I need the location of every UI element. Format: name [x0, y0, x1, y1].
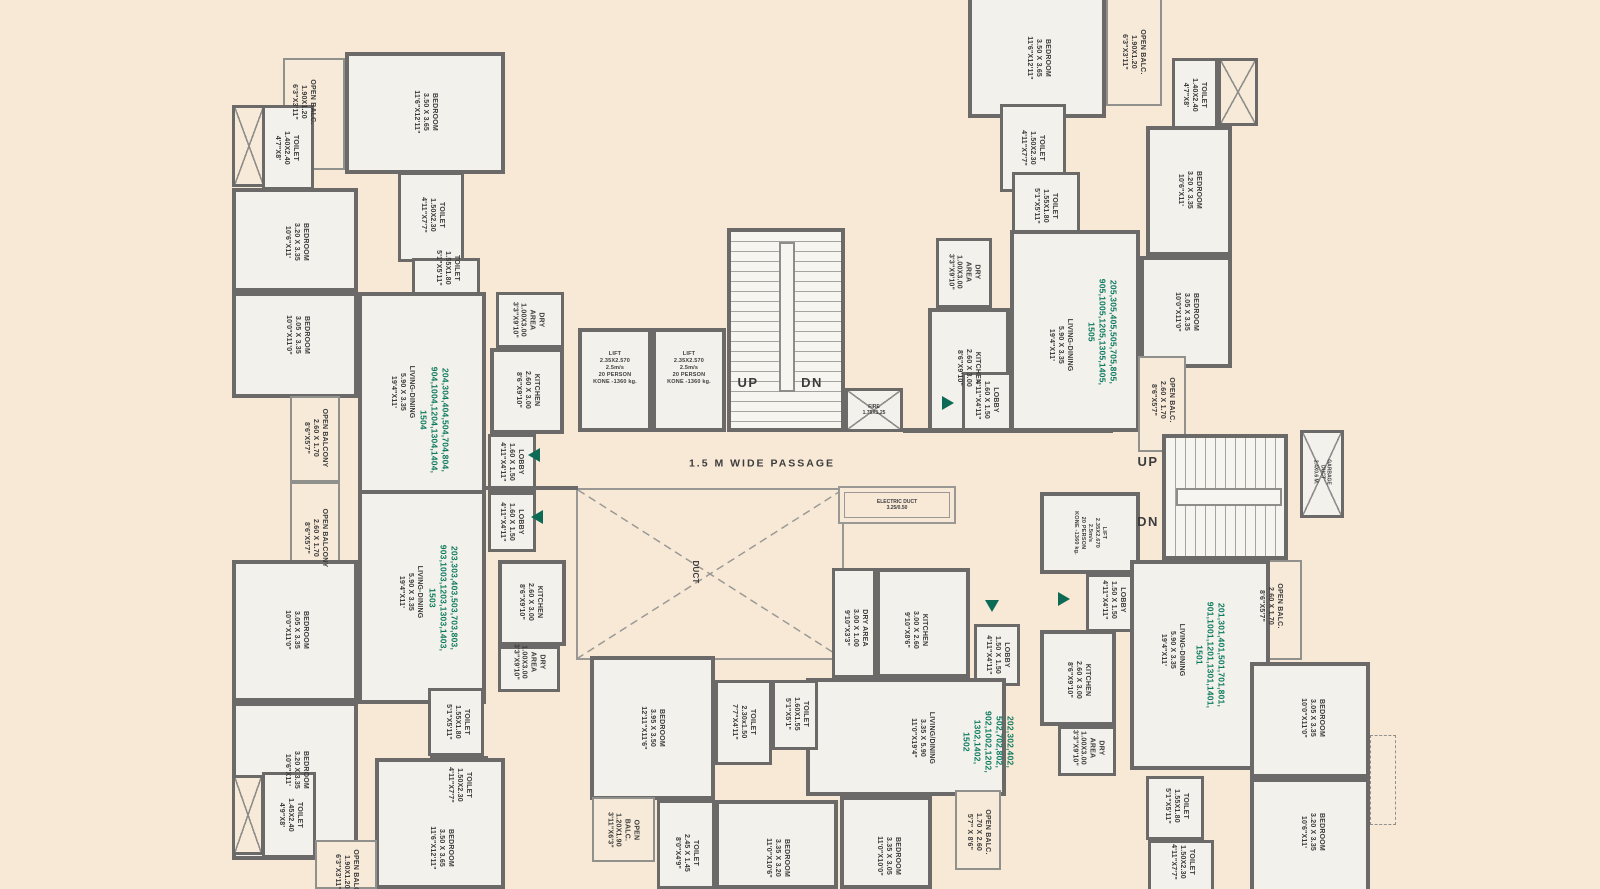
unit-numbers-1503: 203,303,403,503,703,803, 903,1003,1203,1… [426, 545, 459, 651]
toilet-label: TOILET 1.40X2.40 4'7"X8' [1181, 78, 1207, 112]
stair-rail [779, 242, 795, 392]
stair-up-label: UP [1137, 454, 1158, 470]
toilet-label: TOILET 1.50X2.30 4'11"X7'7" [446, 767, 472, 803]
living-dining-label: LIVING-DINING 5.90 X 3.35 19'4"X11' [1047, 319, 1073, 372]
open-balcony [1370, 735, 1396, 825]
duct-label: DUCT [690, 560, 700, 583]
lift-label: LIFT 2.35X2.570 2.5m/s 20 PERSON KONE -1… [593, 351, 637, 385]
unit-numbers-1502: 202,302,402, 502,702,802, 902,1002,1202,… [960, 711, 1015, 773]
bedroom-label: BEDROOM 3.05 X 3.35 10'0"X11'0" [1299, 698, 1325, 738]
passage-label: 1.5 M WIDE PASSAGE [689, 457, 835, 470]
living-dining-label: LIVING-DINING 5.90 X 3.35 19'4"X11' [397, 566, 423, 619]
dry-area-label: DRY AREA 1.00X3.00 3'3"X9'10" [510, 302, 545, 338]
electric-duct-label: ELECTRIC DUCT 3.25/0.50 [877, 499, 917, 512]
toilet-label: TOILET 1.50X2.30 4'11"X7'7" [1169, 844, 1195, 880]
staircase [1162, 434, 1288, 560]
duct-shaft [232, 775, 264, 855]
bedroom-label: BEDROOM 3.05 X 3.35 10'0"X11'0" [284, 315, 310, 355]
entry-arrow-icon [985, 600, 999, 612]
duct-area [576, 488, 844, 660]
fire-duct-label: FIRE 1.75X1.25 [863, 404, 886, 417]
unit-numbers-1501: 201,301,401,501,701,801, 901,1001,1201,1… [1193, 602, 1226, 708]
toilet-label: TOILET 1.50X2.30 4'11"X7'7" [419, 197, 445, 233]
dry-area-label: DRY AREA 1.00X3.00 3'3"X9'10" [1070, 730, 1105, 766]
toilet-label: TOILET 2.30x1.50 7'7"X4'11" [730, 704, 756, 740]
living-dining-label: LIVING-DINING 5.90 X 3.35 19'4"X11' [389, 366, 415, 419]
toilet-label: TOILET 1.45X2.40 4'9"X8' [277, 798, 303, 832]
toilet-label: TOILET 1.50X2.30 4'11"X7'7" [1019, 130, 1045, 166]
dry-area-label: DRY AREA 1.00X3.00 3'3"X9'10" [511, 644, 546, 680]
entry-arrow-icon [528, 448, 540, 462]
stair-rail [1176, 488, 1282, 506]
kitchen-label: KITCHEN 2.60 X 3.00 8'6"X9'10" [514, 371, 540, 409]
bedroom-label: BEDROOM 3.50 X 3.65 11'6"X12'11" [412, 90, 438, 134]
lift-label: LIFT 2.35X2.570 2.5m/s 20 PERSON KONE -1… [667, 351, 711, 385]
entry-arrow-icon [531, 510, 543, 524]
open-balcony-label: OPEN BALC. 1.20X1.90 3'11"X6'3" [605, 812, 640, 848]
living-dining-label: LIVING/DINING 3.35 X 5.90 11'0"X19'4" [909, 712, 935, 764]
toilet-label: TOILET 2.45 X 1.45 8'0"X4'9" [673, 834, 699, 872]
stair-dn-label: DN [1137, 514, 1159, 530]
lift-label: LIFT 2.35X2.670 2.5m/s 20 PERSON KONE -1… [1073, 511, 1107, 555]
open-balcony-label: OPEN BALC. 1.70 X 2.60 5'7" X 8'6" [965, 809, 991, 854]
bedroom-label: BEDROOM 3.50 X 3.65 11'6"X12'11" [428, 826, 454, 870]
open-balcony-label: OPEN BALC. 1.90X1.20 6'3"X3'11" [290, 79, 316, 124]
floor-plan: OPEN BALC. 1.90X1.20 6'3"X3'11" BEDROOM … [0, 0, 1600, 889]
bedroom-label: BEDROOM 3.05 X 3.35 10'0"X11'0" [1173, 292, 1199, 332]
stair-dn-label: DN [801, 375, 823, 391]
kitchen-label: KITCHEN 2.60 X 3.00 8'6"X9'10" [517, 583, 543, 621]
toilet-label: TOILET 1.55X1.80 5'1"X5'11" [1163, 788, 1189, 824]
bedroom-label: BEDROOM 3.20 X 3.35 10'6"X11' [283, 751, 309, 789]
duct-shaft [232, 105, 266, 187]
toilet-label: TOILET 1.40X2.40 4'7"X8' [273, 131, 299, 165]
toilet-label: TOILET 1.60X1.55 5'1"X5'1" [783, 697, 809, 731]
lobby-label: LOBBY 1.60 X 1.50 4'11"X4'11" [498, 442, 524, 481]
open-balcony-label: OPEN BALC. 2.60 X 1.70 8'6"X5'7" [1149, 377, 1175, 422]
unit-numbers-1505: 205,305,405,505,705,805, 905,1005,1205,1… [1085, 279, 1118, 385]
wall-segment [903, 428, 1113, 433]
living-dining-label: LIVING-DINING 5.90 X 3.35 19'4"X11' [1159, 624, 1185, 677]
open-balcony-label: OPEN BALCONY 2.60 X 1.70 8'6"X5'7" [302, 409, 328, 468]
bedroom-label: BEDROOM 3.20 X 3.35 10'6"X11' [1176, 171, 1202, 209]
bedroom-label: BEDROOM 3.05 X 3.35 10'0"X11'0" [283, 610, 309, 650]
bedroom-label: BEDROOM 3.35 X 3.05 11'0"X10'0" [875, 836, 901, 876]
bedroom-label: BEDROOM 3.20 X 3.35 10'6"X11' [283, 223, 309, 261]
lobby-label: LOBBY 1.50 X 1.50 4'11"X4'11" [1100, 580, 1126, 619]
bedroom-label: BEDROOM 3.50 X 3.65 11'6"X12'11" [1025, 36, 1051, 80]
duct-shaft [1218, 58, 1258, 126]
dry-area-label: DRY AREA 1.00X3.00 3'3"X9'10" [946, 254, 981, 290]
toilet-label: TOILET 1.55X1.80 5'1"X5'11" [434, 250, 460, 286]
wall-segment [484, 486, 578, 490]
entry-arrow-icon [942, 396, 954, 410]
bedroom-label: BEDROOM 3.20 X 3.35 10'6"X11' [1299, 813, 1325, 851]
staircase [727, 228, 845, 432]
bedroom-label: BEDROOM 3.95 X 3.50 12'11"X11'6" [639, 706, 665, 750]
lobby-label: LOBBY 1.50 X 1.50 4'11"X4'11" [984, 635, 1010, 674]
garbage-duct-label: GARBAGE DUCT 2.4X0.6 M. [1313, 459, 1332, 485]
duct-cross-lines [578, 490, 842, 658]
lobby-label: LOBBY 1.60 X 1.50 4'11"X4'11" [973, 380, 999, 419]
open-balcony-label: OPEN BALCONY 2.60 X 1.70 8'6"X5'7" [302, 509, 328, 568]
bedroom-label: BEDROOM 3.35 X 3.20 11'0"X10'6" [764, 838, 790, 878]
room-living-dining [1010, 230, 1140, 432]
open-balcony-label: OPEN BALC. 1.90X1.20 6'3"X3'11" [1120, 29, 1146, 74]
unit-numbers-1504: 204,304,404,504,704,804, 904,1004,1204,1… [417, 367, 450, 473]
toilet-label: TOILET 1.55X1.80 5'1"X5'11" [1032, 188, 1058, 224]
stair-up-label: UP [737, 375, 758, 391]
lobby-label: LOBBY 1.60 X 1.50 4'11"X4'11" [498, 502, 524, 541]
kitchen-label: KITCHEN 2.60 X 3.00 8'6"X9'10" [1065, 661, 1091, 699]
dry-area-label: DRY AREA 3.00 X 1.00 9'10"X3'3" [842, 609, 868, 647]
entry-arrow-icon [1058, 592, 1070, 606]
open-balcony-label: OPEN BALC. 1.90X1.20 6'3"X3'11" [333, 849, 359, 889]
open-balcony-label: OPEN BALC. 2.60 X 1.70 8'6"X5'7" [1257, 583, 1283, 628]
kitchen-label: KITCHEN 3.00 X 2.60 9'10"X8'6" [902, 611, 928, 649]
toilet-label: TOILET 1.55X1.80 5'1"X5'11" [444, 704, 470, 740]
